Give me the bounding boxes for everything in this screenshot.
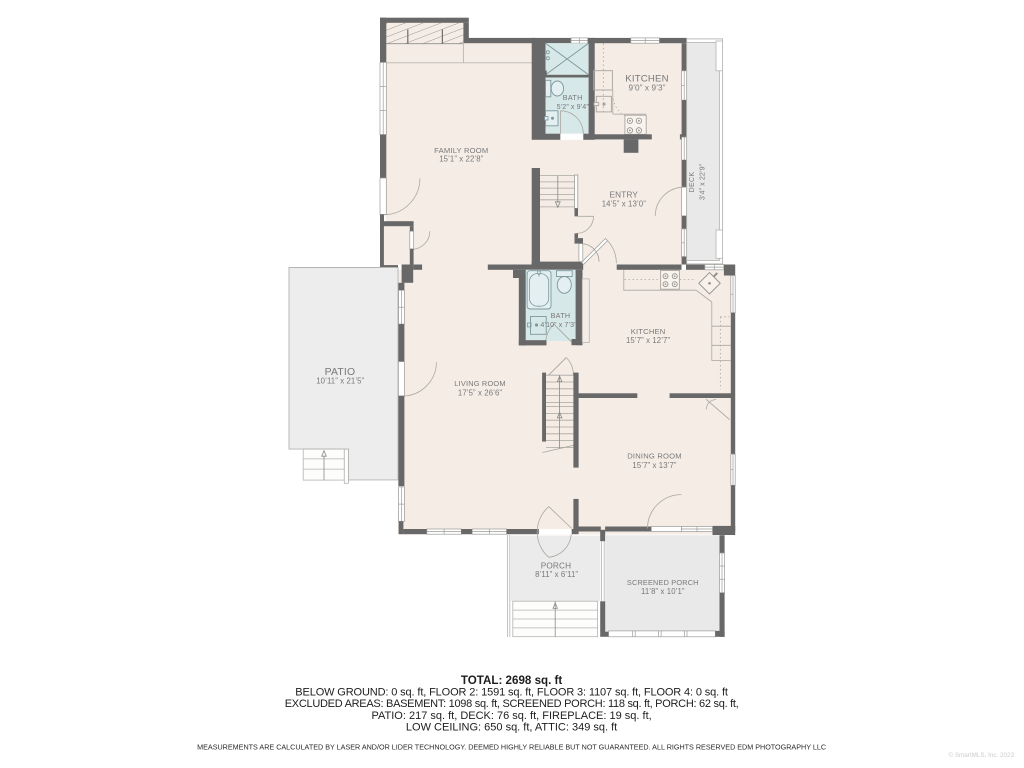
svg-text:10’11” x 21’5”: 10’11” x 21’5” — [316, 377, 364, 386]
svg-text:3’4” x 22’9”: 3’4” x 22’9” — [699, 163, 707, 200]
svg-text:BELOW GROUND: 0 sq. ft, FLOOR: BELOW GROUND: 0 sq. ft, FLOOR 2: 1591 sq… — [295, 686, 728, 698]
svg-text:LOW CEILING: 650 sq. ft, ATTIC: LOW CEILING: 650 sq. ft, ATTIC: 349 sq. … — [406, 721, 617, 733]
svg-text:8’11” x 6’11”: 8’11” x 6’11” — [535, 570, 578, 579]
svg-text:SCREENED PORCH: SCREENED PORCH — [627, 578, 699, 587]
svg-text:BATH: BATH — [563, 93, 583, 102]
svg-text:9’0” x 9’3”: 9’0” x 9’3” — [628, 83, 665, 92]
svg-text:KITCHEN: KITCHEN — [631, 327, 666, 336]
svg-text:EXCLUDED AREAS: BASEMENT: 1098: EXCLUDED AREAS: BASEMENT: 1098 sq. ft, S… — [285, 698, 739, 710]
svg-text:BATH: BATH — [551, 311, 571, 320]
svg-text:MEASUREMENTS ARE CALCULATED BY: MEASUREMENTS ARE CALCULATED BY LASER AND… — [197, 742, 826, 751]
svg-text:FAMILY ROOM: FAMILY ROOM — [434, 146, 488, 155]
svg-text:DINING ROOM: DINING ROOM — [627, 452, 682, 461]
svg-text:4’10” x 7’3”: 4’10” x 7’3” — [540, 321, 577, 329]
svg-text:TOTAL: 2698 sq. ft: TOTAL: 2698 sq. ft — [461, 674, 562, 687]
svg-text:15’7” x 12’7”: 15’7” x 12’7” — [626, 336, 671, 345]
svg-text:5’2” x 9’4”: 5’2” x 9’4” — [557, 103, 590, 111]
svg-text:15’7” x 13’7”: 15’7” x 13’7” — [632, 461, 677, 470]
svg-text:17’5” x 26’6”: 17’5” x 26’6” — [458, 389, 503, 398]
svg-text:11’8” x 10’1”: 11’8” x 10’1” — [641, 587, 685, 596]
svg-text:DECK: DECK — [689, 172, 696, 193]
svg-text:© SmartMLS, Inc. 2023: © SmartMLS, Inc. 2023 — [948, 751, 1014, 759]
svg-text:ENTRY: ENTRY — [609, 191, 638, 200]
svg-text:14’5” x 13’0”: 14’5” x 13’0” — [602, 199, 647, 208]
svg-text:15’1” x 22’8”: 15’1” x 22’8” — [439, 155, 484, 164]
svg-text:LIVING ROOM: LIVING ROOM — [454, 379, 505, 388]
svg-text:PATIO: 217 sq. ft, DECK: 76 sq: PATIO: 217 sq. ft, DECK: 76 sq. ft, FIRE… — [371, 710, 651, 722]
